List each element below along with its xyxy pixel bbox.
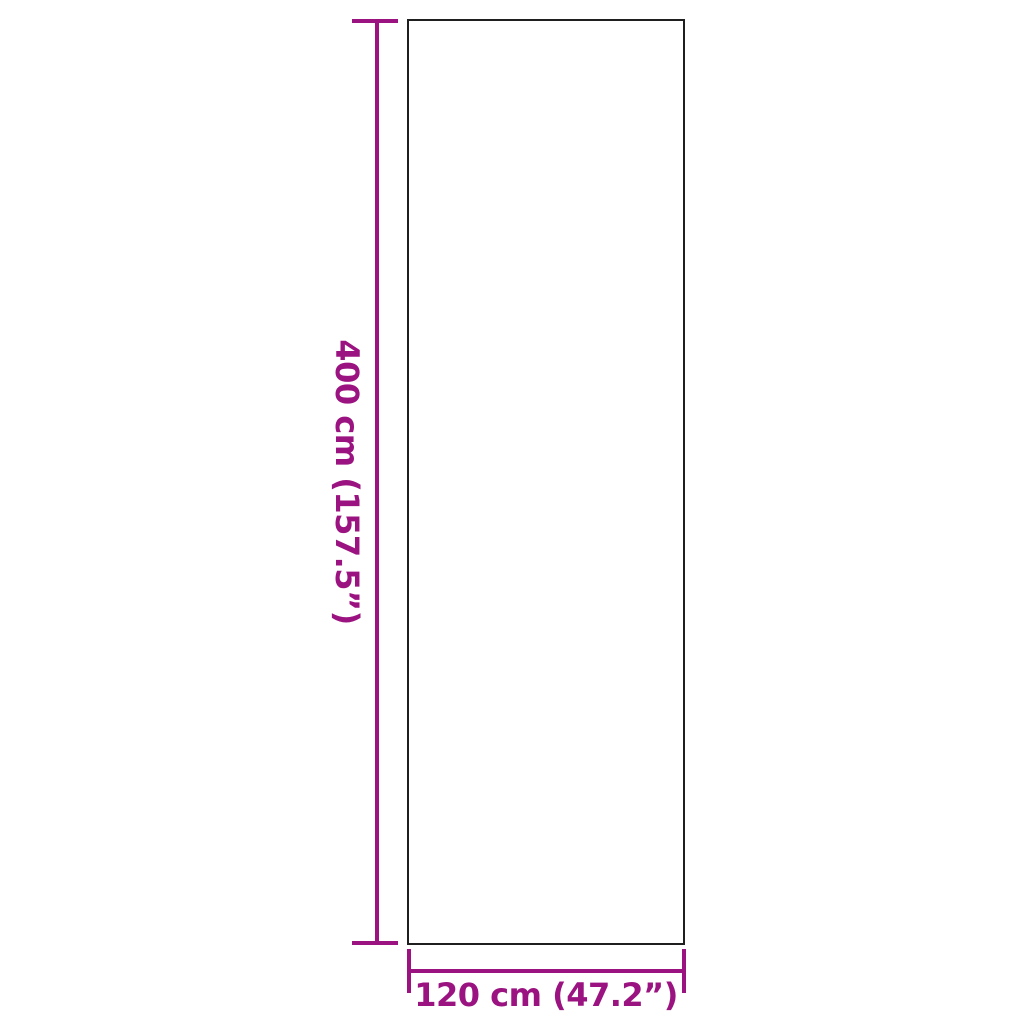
width-dimension-line: [407, 969, 686, 973]
height-dimension-line: [375, 19, 379, 945]
product-outline-rect: [407, 19, 685, 945]
dimension-diagram: 400 cm (157.5”) 120 cm (47.2”): [0, 0, 1024, 1024]
width-dimension-cap-right: [682, 949, 686, 993]
width-dimension-cap-left: [407, 949, 411, 993]
height-dimension-cap-top: [352, 19, 398, 23]
width-dimension-label: 120 cm (47.2”): [414, 979, 678, 1011]
height-dimension-cap-bottom: [352, 941, 398, 945]
height-dimension-label: 400 cm (157.5”): [331, 339, 363, 624]
